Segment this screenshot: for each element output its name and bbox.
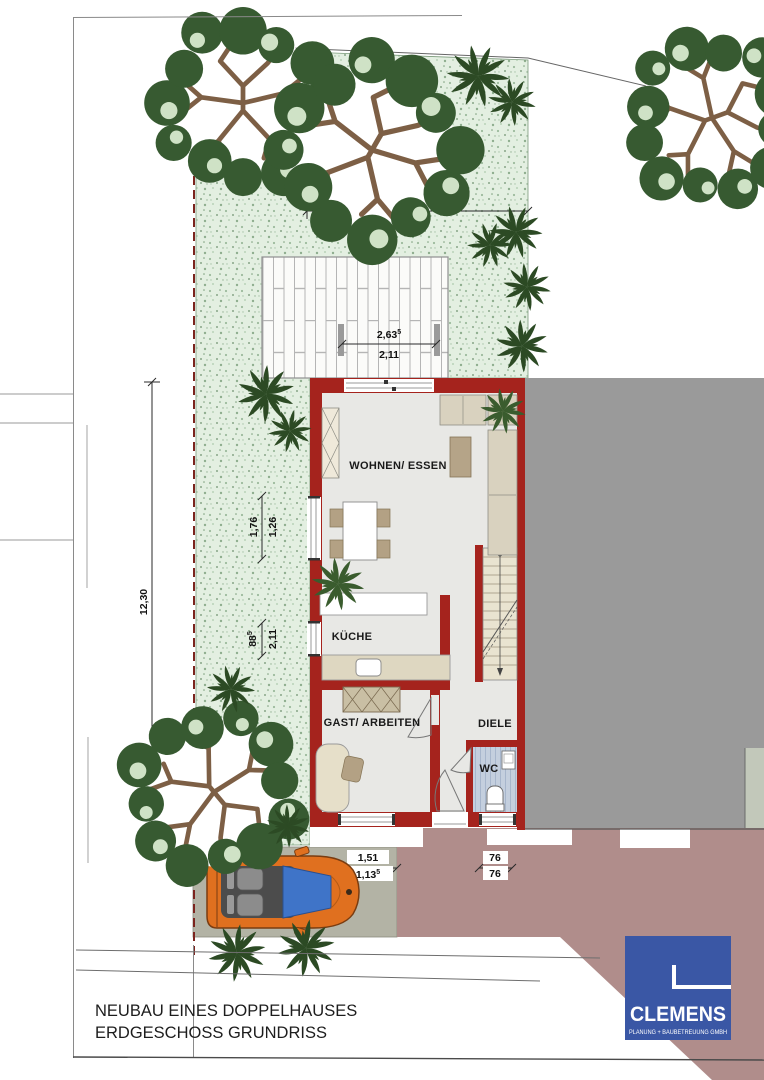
house-apron bbox=[310, 827, 397, 847]
plan-sheet: WOHNEN/ ESSEN KÜCHE GAST/ ARBEITEN DIELE… bbox=[0, 0, 764, 1080]
dim-terrace-lower: 2,11 bbox=[379, 349, 399, 361]
title-line2: ERDGESCHOSS GRUNDRISS bbox=[95, 1024, 327, 1042]
sidewalk-lines bbox=[76, 950, 600, 981]
car-seat bbox=[237, 868, 263, 890]
kitchen-sink bbox=[356, 659, 381, 676]
kitchen-window bbox=[307, 621, 321, 657]
label-hall: DIELE bbox=[478, 718, 512, 730]
wc-room bbox=[473, 747, 517, 812]
entry-step-center bbox=[487, 829, 572, 845]
company-logo: CLEMENS PLANUNG + BAUBETREUUNG GMBH bbox=[625, 936, 731, 1040]
dim-garden-depth: 12,30 bbox=[138, 589, 150, 615]
neighbor-terrace-strip bbox=[745, 748, 764, 829]
dim-entry-upper: 76 bbox=[489, 852, 501, 864]
label-wc: WC bbox=[480, 763, 499, 775]
dining-table bbox=[343, 502, 377, 560]
title-line1: NEUBAU EINES DOPPELHAUSES bbox=[95, 1002, 357, 1020]
terrace-deck bbox=[262, 257, 448, 378]
logo-subtitle: PLANUNG + BAUBETREUUNG GMBH bbox=[629, 1029, 727, 1036]
dim-living-window-upper: 1,76 bbox=[248, 517, 260, 538]
living-window bbox=[307, 496, 321, 561]
logo-name: CLEMENS bbox=[630, 1003, 726, 1026]
adjacent-building-lines bbox=[0, 394, 88, 863]
car-emblem bbox=[346, 889, 352, 895]
kitchen-counter bbox=[322, 655, 450, 680]
sofa-right bbox=[488, 430, 517, 555]
coffee-table bbox=[450, 437, 471, 477]
dim-living-window-lower: 1,26 bbox=[267, 517, 279, 538]
guest-window bbox=[338, 813, 395, 826]
sheet-bottom-border bbox=[73, 1057, 764, 1060]
floor-plan-svg: WOHNEN/ ESSEN KÜCHE GAST/ ARBEITEN DIELE… bbox=[0, 0, 764, 1080]
terrace-door bbox=[344, 379, 434, 392]
car-seat bbox=[237, 894, 263, 916]
dim-kitchen-window-lower: 2,11 bbox=[267, 629, 279, 649]
tree-icon bbox=[595, 0, 764, 239]
wardrobe bbox=[322, 408, 339, 478]
neighbor-house-area bbox=[525, 378, 764, 829]
wc-window bbox=[479, 813, 516, 826]
terrace-door-post-left bbox=[338, 324, 344, 356]
dim-entry-lower: 76 bbox=[489, 868, 501, 880]
staircase bbox=[483, 548, 517, 680]
label-guest: GAST/ ARBEITEN bbox=[324, 717, 421, 729]
entry-step-right bbox=[620, 829, 690, 848]
entry-step-left bbox=[397, 828, 423, 847]
logo-mark bbox=[672, 985, 731, 989]
label-living: WOHNEN/ ESSEN bbox=[349, 460, 446, 472]
label-kitchen: KÜCHE bbox=[332, 630, 373, 643]
terrace-door-post-right bbox=[434, 324, 440, 356]
dim-driveway-upper: 1,51 bbox=[358, 852, 379, 864]
